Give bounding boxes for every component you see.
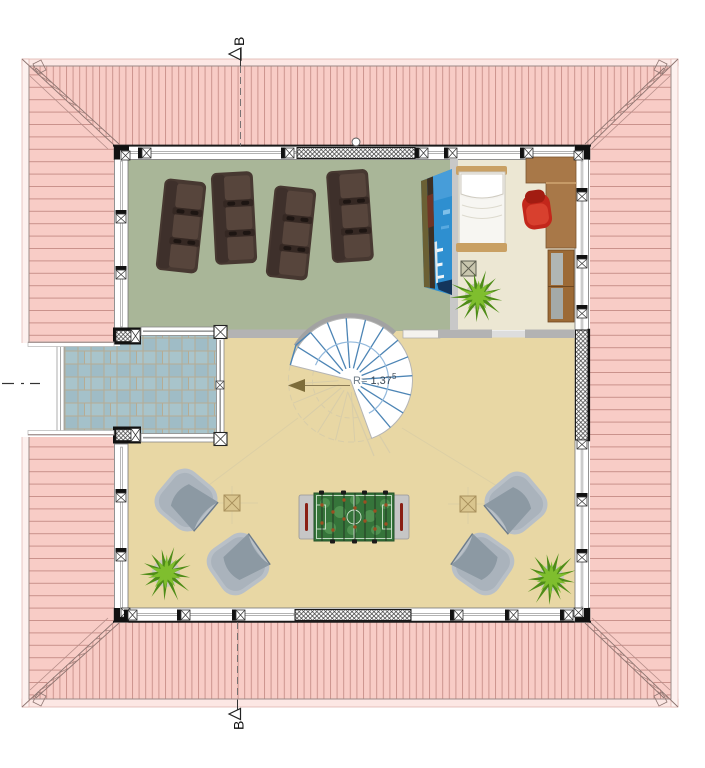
svg-text:R= 1,37: R= 1,37: [353, 375, 392, 387]
svg-text:B: B: [231, 721, 247, 730]
svg-text:B: B: [231, 37, 247, 46]
svg-text:5: 5: [392, 372, 397, 381]
